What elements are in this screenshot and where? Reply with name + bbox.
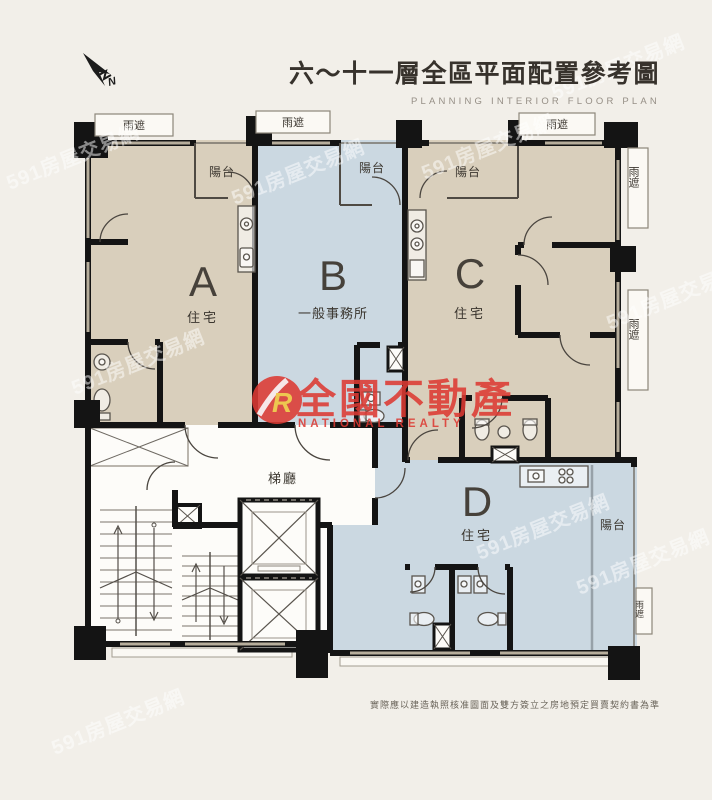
floorplan-page: 雨遮 雨遮 雨遮 雨遮 雨遮 雨遮 陽台 陽台 陽台 陽台 梯廳 A 住宅 B … (0, 0, 712, 800)
column (74, 626, 106, 660)
rain-shade-box-right-1 (628, 148, 648, 228)
floorplan-canvas: 雨遮 雨遮 雨遮 雨遮 雨遮 雨遮 陽台 陽台 陽台 陽台 梯廳 A 住宅 B … (0, 0, 712, 800)
page-title: 六～十一層全區平面配置參考圖 (289, 59, 660, 88)
logo-name-en: NATIONAL REALTY (298, 418, 465, 430)
toilet-d2 (478, 613, 498, 626)
stair-hall-label: 梯廳 (268, 471, 298, 486)
column (610, 246, 636, 272)
unit-c-letter: C (455, 250, 485, 297)
column (396, 120, 422, 148)
balcony-label-d: 陽台 (600, 517, 626, 532)
rain-shade-label: 雨遮 (282, 115, 304, 129)
ledge-bottom-right (340, 657, 612, 666)
unit-b-letter: B (319, 252, 347, 299)
basin-c (498, 426, 510, 438)
unit-c-type: 住宅 (454, 306, 486, 321)
north-compass: N (83, 53, 118, 89)
oven-c (410, 260, 424, 277)
compass-north-label: N (107, 75, 119, 89)
column (608, 646, 640, 680)
page-subtitle: PLANNING INTERIOR FLOOR PLAN (411, 96, 660, 107)
unit-d-letter: D (462, 478, 492, 525)
logo-symbol: R (272, 387, 293, 418)
watermark-591: 591房屋交易網 (48, 684, 188, 759)
column (296, 630, 328, 678)
column (74, 400, 100, 428)
rain-shade-label: 雨遮 (634, 600, 644, 619)
unit-a-letter: A (189, 258, 217, 305)
unit-b-type: 一般事務所 (298, 306, 368, 321)
column (604, 122, 638, 148)
rain-shade-label: 雨遮 (627, 166, 640, 188)
unit-a-type: 住宅 (187, 310, 219, 325)
logo-name-zh: 全國不動產 (294, 376, 515, 422)
header: 六～十一層全區平面配置參考圖 PLANNING INTERIOR FLOOR P… (289, 59, 660, 107)
balcony-label-b: 陽台 (359, 160, 385, 175)
balcony-label-a: 陽台 (209, 164, 235, 179)
north-arrow-icon (83, 53, 110, 86)
stove-d (559, 469, 565, 475)
disclaimer-text: 實際應以建造執照核准圖面及雙方簽立之房地預定買賣契約書為準 (370, 699, 660, 710)
